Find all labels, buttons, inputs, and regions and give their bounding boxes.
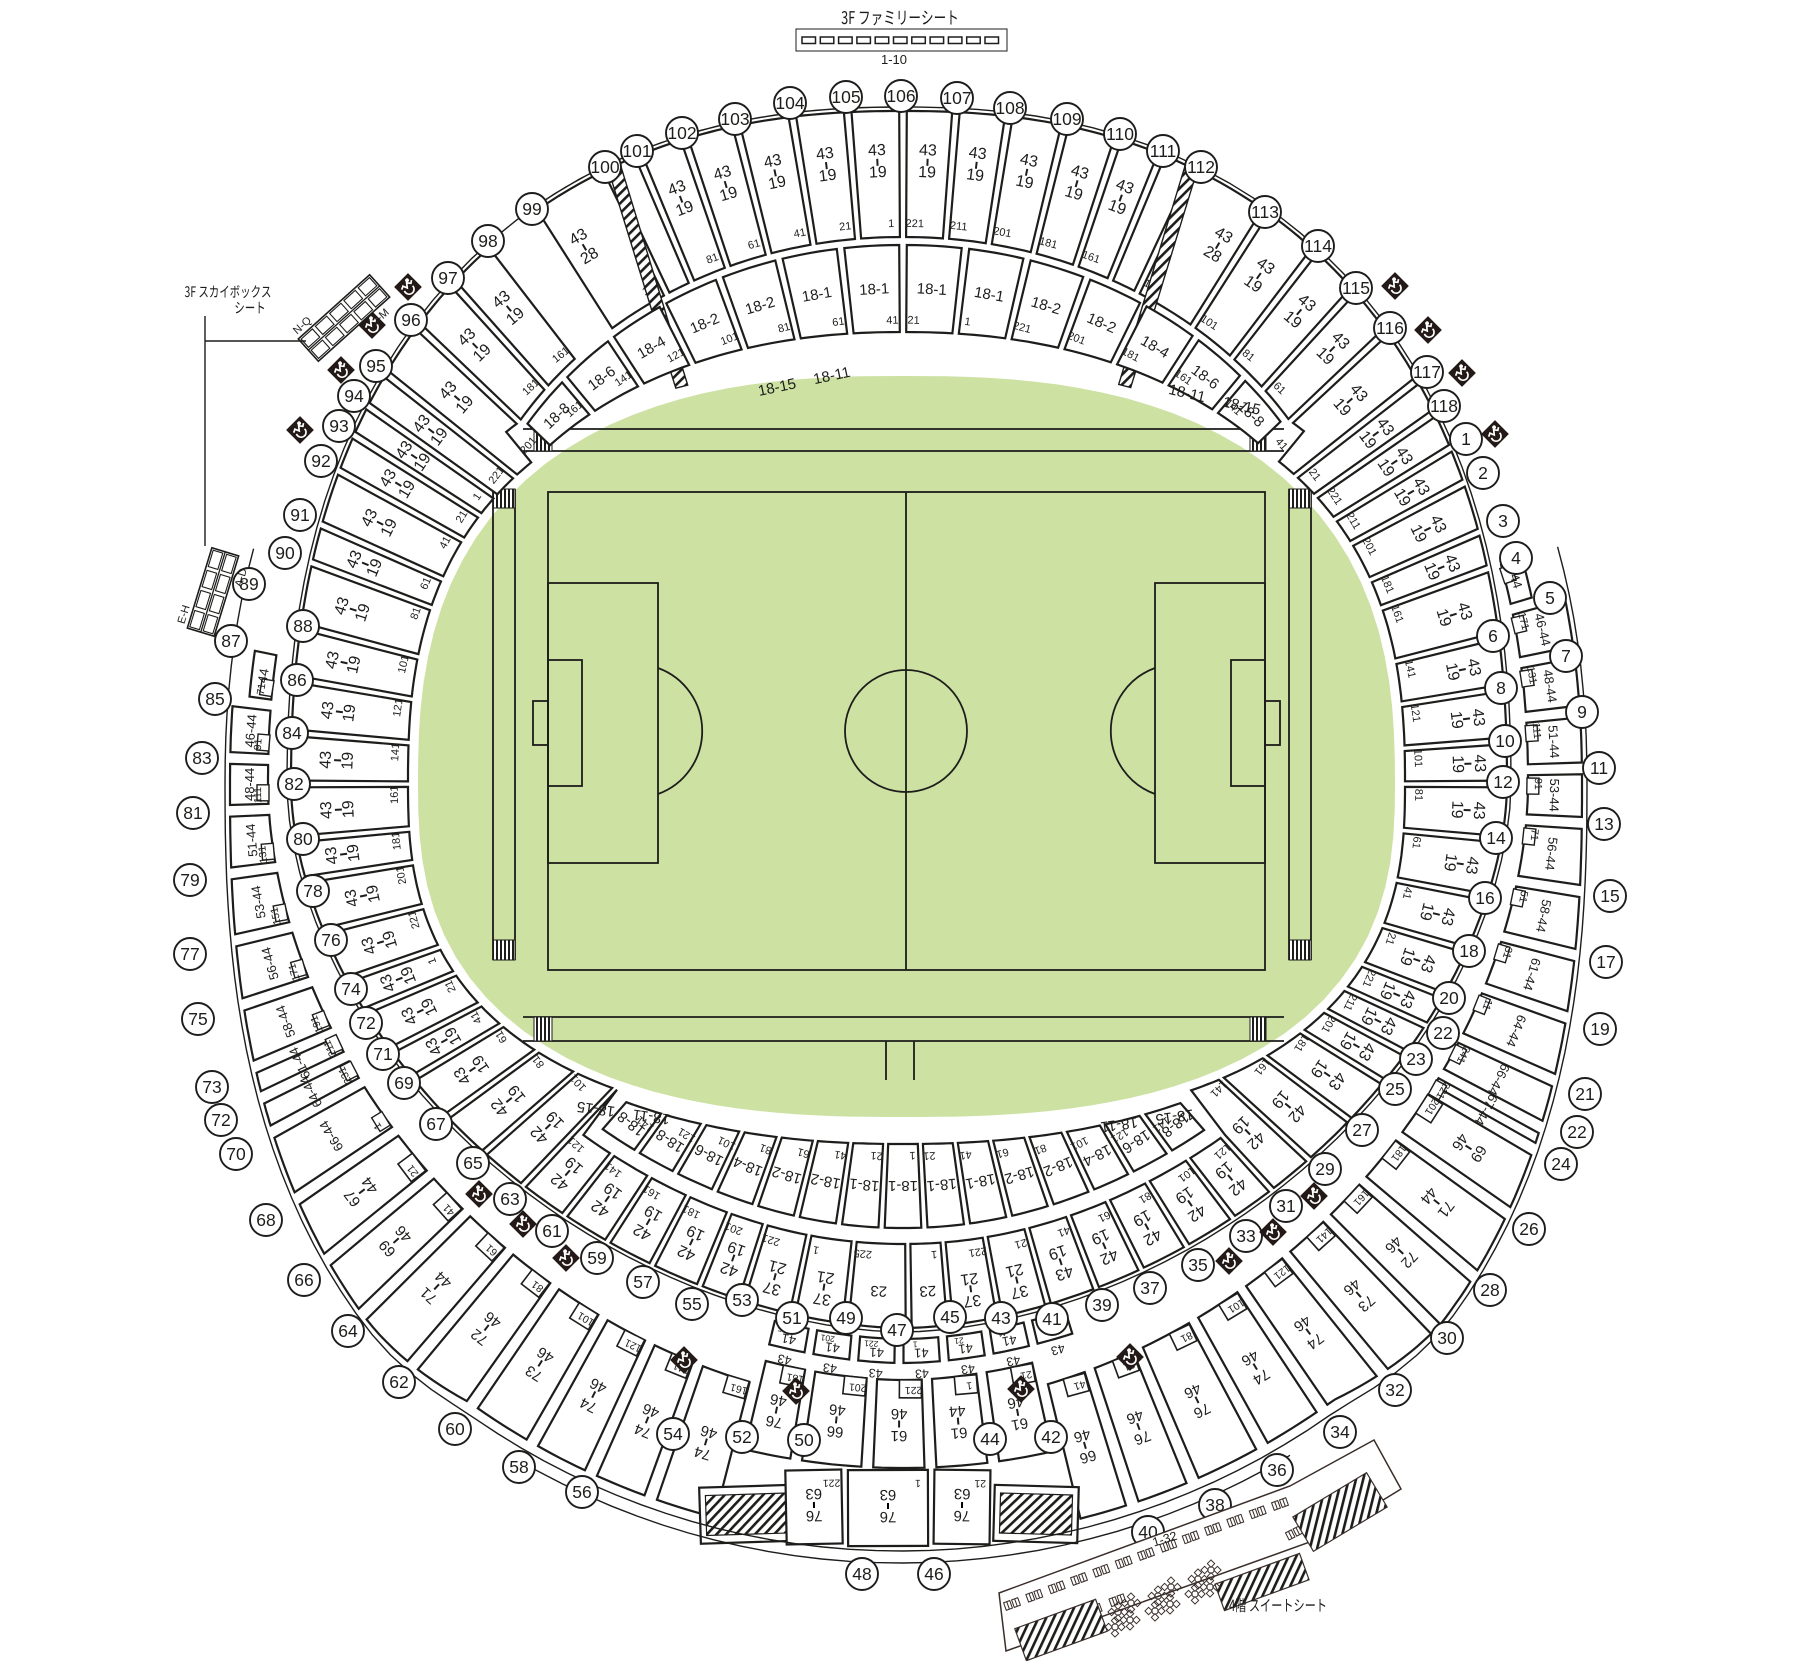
svg-text:50: 50: [794, 1430, 814, 1450]
svg-text:57: 57: [633, 1272, 652, 1292]
svg-text:104: 104: [775, 93, 804, 113]
svg-text:20: 20: [1439, 988, 1459, 1008]
svg-text:94: 94: [344, 386, 364, 406]
svg-text:63: 63: [954, 1485, 971, 1502]
svg-text:19: 19: [1440, 852, 1459, 872]
svg-text:82: 82: [284, 774, 303, 794]
svg-text:59: 59: [587, 1248, 606, 1268]
svg-text:43: 43: [317, 750, 335, 769]
svg-text:161: 161: [389, 785, 401, 804]
svg-text:51-44: 51-44: [1545, 725, 1562, 759]
svg-text:37: 37: [812, 1289, 832, 1309]
svg-text:16: 16: [1475, 888, 1494, 908]
svg-text:39: 39: [1092, 1295, 1111, 1315]
svg-text:25: 25: [1385, 1079, 1404, 1099]
svg-text:61: 61: [1010, 1414, 1029, 1434]
svg-text:114: 114: [1304, 236, 1332, 256]
svg-text:221: 221: [864, 1338, 879, 1349]
svg-text:73: 73: [202, 1077, 221, 1097]
svg-text:77: 77: [180, 944, 199, 964]
svg-text:21: 21: [815, 1267, 835, 1287]
svg-text:21: 21: [839, 220, 852, 233]
svg-text:69: 69: [394, 1073, 413, 1093]
svg-text:45: 45: [940, 1307, 959, 1327]
svg-text:97: 97: [438, 268, 457, 288]
svg-text:19: 19: [1449, 755, 1467, 774]
svg-text:201: 201: [820, 1332, 836, 1344]
svg-text:21: 21: [870, 1149, 883, 1162]
svg-text:211: 211: [949, 220, 968, 234]
svg-text:221: 221: [823, 1476, 841, 1488]
svg-text:19: 19: [1590, 1019, 1609, 1039]
svg-text:49: 49: [836, 1308, 855, 1328]
svg-text:7: 7: [1561, 646, 1571, 666]
svg-text:18-1: 18-1: [888, 1177, 918, 1194]
svg-text:3: 3: [1498, 511, 1508, 531]
svg-text:19: 19: [1447, 710, 1466, 730]
svg-text:225: 225: [853, 1247, 872, 1261]
svg-text:41: 41: [958, 1148, 972, 1162]
svg-text:72: 72: [356, 1013, 375, 1033]
svg-text:46: 46: [828, 1400, 846, 1419]
svg-text:84: 84: [282, 723, 302, 743]
svg-text:18-1: 18-1: [849, 1175, 881, 1195]
svg-text:21: 21: [907, 315, 920, 327]
svg-text:1: 1: [915, 1477, 921, 1489]
svg-text:19: 19: [364, 883, 384, 904]
svg-text:53-44: 53-44: [1547, 778, 1563, 811]
svg-text:48: 48: [852, 1564, 871, 1584]
svg-text:201: 201: [848, 1380, 867, 1393]
svg-text:46: 46: [924, 1564, 943, 1584]
svg-text:66: 66: [294, 1270, 313, 1290]
svg-text:46: 46: [891, 1405, 908, 1422]
svg-text:19: 19: [965, 166, 985, 185]
svg-text:43: 43: [1018, 151, 1039, 171]
svg-text:91: 91: [290, 505, 309, 525]
svg-text:37: 37: [1140, 1278, 1159, 1298]
svg-text:30: 30: [1437, 1328, 1457, 1348]
svg-text:15: 15: [1600, 886, 1619, 906]
svg-text:72: 72: [211, 1110, 230, 1130]
svg-text:23: 23: [1406, 1049, 1425, 1069]
svg-text:8: 8: [1496, 678, 1506, 698]
svg-text:63: 63: [805, 1485, 822, 1502]
svg-text:21: 21: [1575, 1084, 1594, 1104]
svg-text:61: 61: [542, 1221, 561, 1241]
svg-text:43: 43: [991, 1308, 1010, 1328]
svg-text:64: 64: [338, 1321, 358, 1341]
svg-text:19: 19: [918, 164, 937, 182]
svg-text:53: 53: [732, 1290, 751, 1310]
svg-text:11: 11: [1590, 758, 1608, 778]
svg-text:19: 19: [869, 164, 888, 182]
svg-text:107: 107: [942, 88, 971, 108]
svg-text:22: 22: [1433, 1023, 1452, 1043]
svg-text:44: 44: [948, 1401, 966, 1419]
svg-text:14: 14: [1486, 828, 1506, 848]
svg-text:43: 43: [342, 888, 362, 909]
svg-text:71: 71: [373, 1044, 392, 1064]
svg-text:103: 103: [720, 109, 749, 129]
svg-text:21: 21: [923, 1149, 936, 1162]
svg-text:118: 118: [1430, 396, 1458, 416]
svg-text:100: 100: [590, 157, 619, 177]
svg-text:221: 221: [905, 1384, 923, 1396]
svg-text:110: 110: [1106, 124, 1134, 144]
svg-text:108: 108: [995, 98, 1024, 118]
svg-text:71: 71: [1528, 828, 1541, 841]
svg-text:19: 19: [344, 843, 363, 863]
svg-text:91: 91: [252, 738, 265, 751]
svg-text:102: 102: [667, 123, 696, 143]
svg-text:33: 33: [1236, 1226, 1255, 1246]
svg-text:43: 43: [318, 700, 337, 720]
svg-text:109: 109: [1052, 109, 1081, 129]
svg-text:63: 63: [500, 1189, 519, 1209]
svg-text:78: 78: [303, 881, 322, 901]
svg-text:4: 4: [1511, 548, 1521, 568]
svg-text:75: 75: [188, 1009, 207, 1029]
svg-text:71: 71: [255, 682, 269, 695]
svg-text:19: 19: [340, 800, 358, 819]
svg-text:43: 43: [868, 1366, 883, 1381]
svg-text:76: 76: [321, 930, 340, 950]
svg-text:5: 5: [1545, 588, 1555, 608]
svg-text:86: 86: [287, 670, 306, 690]
svg-text:111: 111: [252, 787, 264, 803]
svg-text:43: 43: [815, 145, 835, 164]
svg-text:1: 1: [888, 218, 894, 230]
svg-text:21: 21: [954, 1335, 965, 1346]
svg-text:1: 1: [912, 1340, 917, 1350]
svg-text:41: 41: [1042, 1309, 1061, 1329]
svg-text:1: 1: [1461, 429, 1471, 449]
svg-text:43: 43: [762, 151, 783, 171]
svg-text:43: 43: [1462, 855, 1481, 875]
svg-text:2: 2: [1478, 463, 1488, 483]
svg-text:76: 76: [880, 1508, 897, 1525]
svg-text:115: 115: [1342, 278, 1370, 298]
svg-text:131: 131: [256, 845, 270, 864]
svg-text:19: 19: [1014, 173, 1035, 193]
svg-text:44: 44: [255, 667, 272, 684]
svg-text:76: 76: [953, 1507, 970, 1524]
svg-text:111: 111: [1150, 141, 1177, 161]
svg-text:19: 19: [767, 173, 788, 193]
svg-text:43: 43: [318, 801, 336, 820]
svg-text:17: 17: [1596, 952, 1615, 972]
svg-text:85: 85: [205, 689, 224, 709]
svg-text:101: 101: [1411, 749, 1424, 768]
svg-text:91: 91: [1532, 778, 1544, 790]
svg-text:68: 68: [256, 1210, 275, 1230]
svg-text:9: 9: [1577, 702, 1587, 722]
svg-text:32: 32: [1385, 1380, 1404, 1400]
svg-text:93: 93: [329, 416, 348, 436]
svg-text:60: 60: [445, 1419, 465, 1439]
svg-text:1: 1: [931, 1248, 938, 1260]
svg-text:55: 55: [682, 1294, 701, 1314]
svg-text:63: 63: [880, 1486, 897, 1503]
svg-text:61: 61: [891, 1427, 908, 1444]
svg-text:76: 76: [806, 1507, 823, 1524]
svg-text:81: 81: [1412, 789, 1424, 801]
svg-text:43: 43: [919, 142, 938, 160]
svg-text:41: 41: [833, 1148, 847, 1162]
svg-text:74: 74: [341, 979, 361, 999]
svg-text:19: 19: [818, 166, 838, 185]
svg-text:83: 83: [192, 748, 211, 768]
svg-text:111: 111: [1530, 722, 1543, 739]
svg-text:44: 44: [980, 1429, 1000, 1449]
svg-text:18-1: 18-1: [926, 1175, 958, 1195]
svg-text:96: 96: [401, 310, 420, 330]
svg-text:51: 51: [1516, 890, 1530, 904]
svg-text:116: 116: [1376, 318, 1404, 338]
svg-text:21: 21: [959, 1269, 979, 1288]
svg-text:92: 92: [311, 451, 330, 471]
svg-text:19: 19: [1448, 800, 1466, 819]
svg-text:47: 47: [887, 1320, 906, 1340]
svg-text:21: 21: [974, 1477, 986, 1489]
svg-text:19: 19: [1442, 661, 1462, 682]
svg-text:22: 22: [1567, 1122, 1586, 1142]
svg-text:112: 112: [1187, 157, 1215, 177]
svg-text:61: 61: [1409, 836, 1422, 850]
svg-text:105: 105: [831, 87, 860, 107]
svg-text:88: 88: [293, 616, 312, 636]
svg-text:43: 43: [1463, 657, 1483, 678]
svg-text:41: 41: [1400, 886, 1414, 900]
svg-text:141: 141: [389, 743, 402, 762]
svg-text:121: 121: [1408, 703, 1422, 723]
svg-text:41: 41: [886, 315, 899, 327]
svg-text:90: 90: [275, 543, 295, 563]
svg-text:43: 43: [1468, 708, 1487, 728]
svg-text:80: 80: [293, 829, 313, 849]
svg-text:6: 6: [1488, 626, 1498, 646]
svg-text:27: 27: [1352, 1120, 1371, 1140]
svg-text:19: 19: [340, 703, 359, 723]
svg-text:54: 54: [663, 1424, 683, 1444]
svg-text:23: 23: [870, 1282, 887, 1300]
svg-text:181: 181: [390, 831, 404, 851]
svg-text:95: 95: [366, 356, 385, 376]
svg-text:26: 26: [1519, 1219, 1538, 1239]
svg-text:43: 43: [868, 142, 887, 160]
svg-text:1-10: 1-10: [881, 52, 907, 67]
svg-text:117: 117: [1413, 362, 1441, 382]
svg-text:18-1: 18-1: [916, 280, 947, 299]
svg-text:23: 23: [919, 1282, 936, 1300]
svg-text:29: 29: [1315, 1159, 1334, 1179]
svg-text:62: 62: [389, 1372, 408, 1392]
svg-text:98: 98: [478, 231, 497, 251]
svg-text:43: 43: [968, 144, 988, 163]
svg-text:18: 18: [1459, 941, 1478, 961]
svg-text:81: 81: [183, 803, 202, 823]
svg-text:76: 76: [764, 1411, 784, 1431]
svg-text:56: 56: [572, 1482, 591, 1502]
svg-text:43: 43: [1470, 801, 1488, 820]
svg-text:41: 41: [793, 227, 807, 241]
svg-text:24: 24: [1551, 1154, 1571, 1174]
svg-text:37: 37: [962, 1291, 982, 1310]
svg-text:43: 43: [323, 846, 342, 866]
svg-text:51: 51: [782, 1308, 801, 1328]
svg-text:19: 19: [339, 751, 357, 770]
svg-text:58: 58: [509, 1457, 528, 1477]
svg-text:99: 99: [522, 199, 541, 219]
svg-text:18-1: 18-1: [859, 280, 890, 299]
svg-text:13: 13: [1594, 814, 1613, 834]
svg-text:42: 42: [1041, 1427, 1060, 1447]
svg-text:66: 66: [826, 1422, 844, 1441]
svg-text:221: 221: [905, 218, 924, 230]
svg-text:61: 61: [832, 316, 846, 330]
svg-text:12: 12: [1493, 772, 1512, 792]
svg-text:31: 31: [1276, 1196, 1295, 1216]
svg-text:36: 36: [1267, 1460, 1286, 1480]
svg-text:52: 52: [732, 1427, 751, 1447]
svg-text:106: 106: [886, 86, 915, 106]
svg-text:28: 28: [1480, 1280, 1499, 1300]
svg-text:35: 35: [1188, 1255, 1207, 1275]
svg-text:43: 43: [1471, 754, 1489, 773]
svg-text:67: 67: [426, 1114, 445, 1134]
svg-text:10: 10: [1495, 731, 1515, 751]
svg-text:61: 61: [950, 1423, 968, 1441]
svg-text:34: 34: [1330, 1422, 1350, 1442]
svg-text:1: 1: [909, 1149, 915, 1161]
svg-text:113: 113: [1251, 202, 1279, 222]
svg-text:70: 70: [226, 1144, 246, 1164]
svg-text:79: 79: [180, 870, 199, 890]
svg-text:65: 65: [463, 1153, 482, 1173]
svg-text:87: 87: [221, 631, 240, 651]
svg-text:101: 101: [622, 141, 651, 161]
